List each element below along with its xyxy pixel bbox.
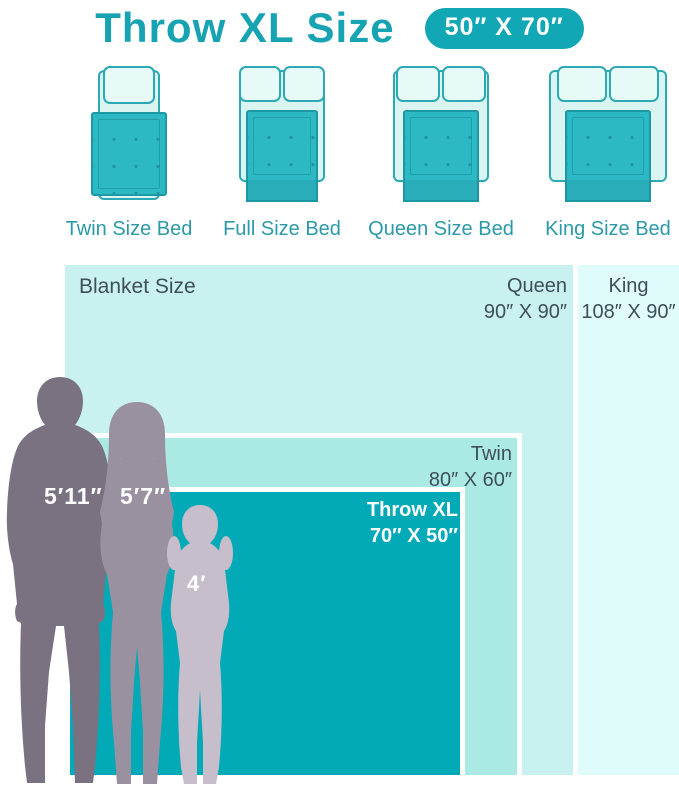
girl-height-label: 4′ <box>187 571 207 597</box>
blanket-drape <box>246 180 318 202</box>
woman-height-label: 5′7″ <box>120 483 166 510</box>
blanket-drape <box>403 180 479 202</box>
pillow-icon <box>283 66 325 102</box>
queen-bed-icon <box>391 66 491 208</box>
size-badge: 50″ X 70″ <box>425 8 584 49</box>
queen-dimensions: 90″ X 90″ <box>417 299 567 325</box>
pillow-icon <box>609 66 659 102</box>
king-name: King <box>578 273 679 299</box>
pillow-icon <box>442 66 486 102</box>
twin-bed-icon <box>88 66 170 208</box>
queen-name: Queen <box>417 273 567 299</box>
queen-size-label: Queen 90″ X 90″ <box>417 273 567 325</box>
bed-column-king: King Size Bed <box>540 66 676 241</box>
blanket-drape <box>565 180 651 202</box>
bed-column-twin: Twin Size Bed <box>68 66 190 241</box>
twin-dimensions: 80″ X 60″ <box>365 467 512 493</box>
throw-xl-size-label: Throw XL 70″ X 50″ <box>310 497 458 549</box>
page-title: Throw XL Size <box>95 4 394 52</box>
man-height-label: 5′11″ <box>44 483 103 510</box>
twin-name: Twin <box>365 441 512 467</box>
bed-label-king: King Size Bed <box>545 218 671 241</box>
bed-column-full: Full Size Bed <box>220 66 344 241</box>
pillow-icon <box>239 66 281 102</box>
king-bed-icon <box>549 66 667 208</box>
full-bed-icon <box>235 66 329 208</box>
blanket-icon <box>565 110 651 182</box>
blanket-icon <box>246 110 318 182</box>
pillow-icon <box>396 66 440 102</box>
bed-label-twin: Twin Size Bed <box>66 218 193 241</box>
king-size-label: King 108″ X 90″ <box>578 273 679 325</box>
pillow-icon <box>103 66 155 104</box>
chart-heading: Blanket Size <box>79 275 196 299</box>
blanket-icon <box>403 110 479 182</box>
twin-size-label: Twin 80″ X 60″ <box>365 441 512 493</box>
infographic-canvas: Throw XL Size 50″ X 70″ Twin Size Bed Fu… <box>0 0 679 786</box>
girl-silhouette <box>160 503 240 786</box>
blanket-icon <box>91 112 167 196</box>
bed-label-full: Full Size Bed <box>223 218 341 241</box>
pillow-icon <box>557 66 607 102</box>
bed-label-queen: Queen Size Bed <box>368 218 514 241</box>
king-dimensions: 108″ X 90″ <box>578 299 679 325</box>
header: Throw XL Size 50″ X 70″ <box>0 2 679 54</box>
throw-xl-dimensions: 70″ X 50″ <box>310 523 458 549</box>
bed-column-queen: Queen Size Bed <box>378 66 504 241</box>
throw-xl-name: Throw XL <box>310 497 458 523</box>
